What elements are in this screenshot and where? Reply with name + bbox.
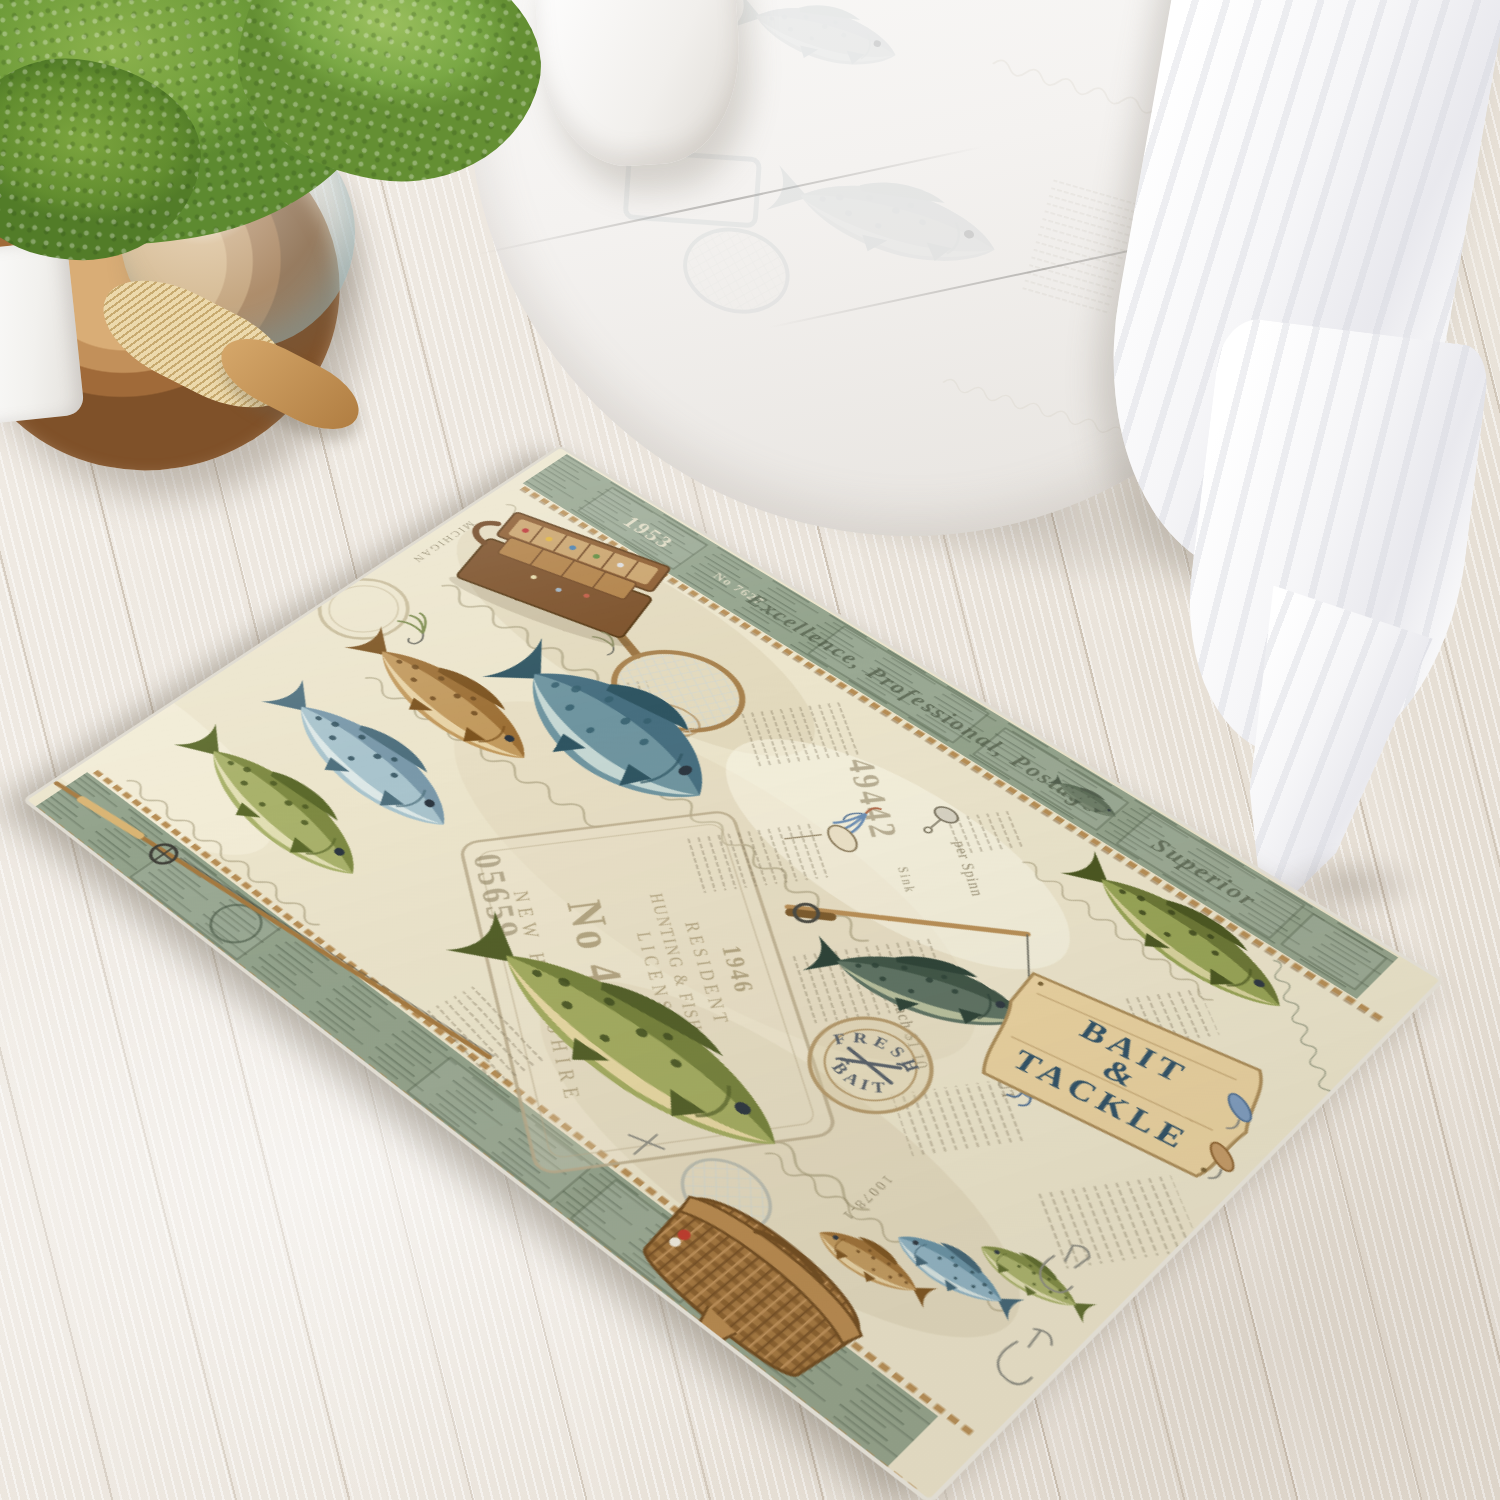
bathroom-scene: 1953 No 7627 Excellence, Professional, P… [0,0,1500,1500]
